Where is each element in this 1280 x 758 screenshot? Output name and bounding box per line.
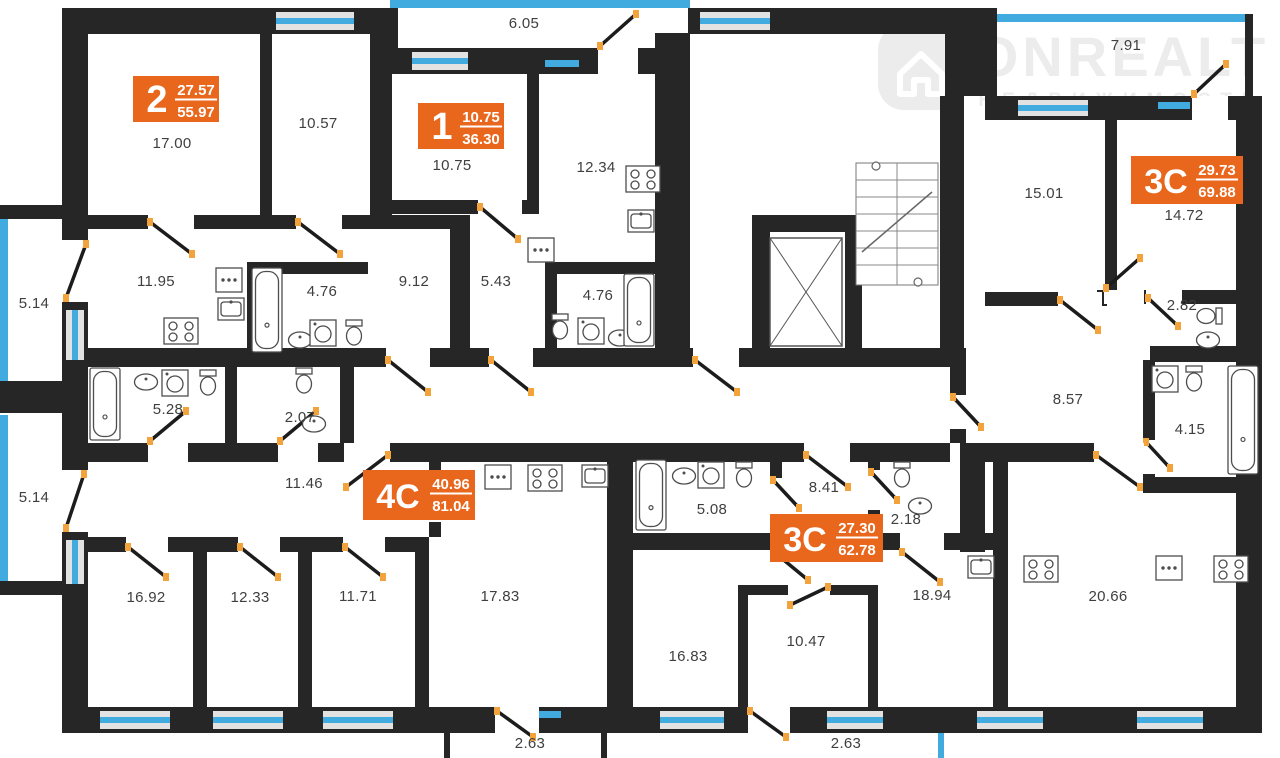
- door-hinge: [803, 451, 809, 459]
- door-hinge: [147, 218, 153, 226]
- door-hinge: [747, 707, 753, 715]
- apartment-total-area: 69.88: [1198, 184, 1236, 201]
- door-opening: [598, 48, 638, 74]
- window-glass: [100, 717, 170, 723]
- door-hinge: [425, 388, 431, 396]
- door-hinge: [1093, 451, 1099, 459]
- stove-icon: [626, 166, 660, 192]
- window-glass: [1137, 717, 1203, 723]
- room-area-label: 5.28: [153, 401, 183, 418]
- door-opening: [748, 707, 790, 733]
- wall: [444, 733, 450, 758]
- room-area-label: 9.12: [399, 273, 429, 290]
- wall: [607, 462, 633, 707]
- door-hinge: [275, 573, 281, 581]
- staircase: [856, 162, 938, 286]
- door-opening: [278, 443, 318, 462]
- room-area-label: 11.95: [137, 273, 175, 290]
- door-hinge: [147, 437, 153, 445]
- door-hinge: [83, 240, 89, 248]
- door-hinge: [783, 733, 789, 741]
- door-opening: [495, 707, 539, 733]
- room-area-label: 10.47: [786, 633, 825, 650]
- room-area-label: 8.57: [1053, 391, 1083, 408]
- apartment-total-area: 81.04: [432, 498, 470, 515]
- washing-machine-icon: [1152, 366, 1178, 392]
- door-hinge: [1103, 284, 1109, 292]
- washing-machine-icon: [162, 370, 188, 396]
- wall: [88, 215, 392, 229]
- wall: [601, 733, 607, 758]
- door-hinge: [515, 235, 521, 243]
- toilet-icon: [552, 314, 568, 339]
- room-area-label: 15.01: [1024, 185, 1063, 202]
- window-glass: [1018, 105, 1088, 111]
- wall: [942, 348, 966, 367]
- washbasin-icon: [1197, 332, 1220, 348]
- room-area-label: 16.83: [668, 648, 707, 665]
- door-opening: [148, 443, 188, 462]
- room-area-label: 2.18: [891, 511, 921, 528]
- wall: [450, 215, 470, 348]
- window-glass: [323, 717, 393, 723]
- door-hinge: [343, 483, 349, 491]
- door-hinge: [189, 250, 195, 258]
- fridge-icon: [485, 465, 511, 489]
- window-glass: [72, 310, 78, 360]
- apartment-total-area: 62.78: [838, 542, 876, 559]
- room-area-label: 5.14: [19, 295, 49, 312]
- door-hinge: [488, 356, 494, 364]
- room-area-label: 4.76: [583, 287, 613, 304]
- door-hinge: [894, 496, 900, 504]
- door-hinge: [494, 707, 500, 715]
- apartment-type: 3C: [1144, 163, 1187, 201]
- wall: [370, 33, 392, 229]
- door-opening: [1104, 290, 1144, 304]
- door-opening: [1192, 96, 1228, 120]
- room-area-label: 16.92: [126, 589, 165, 606]
- door-hinge: [528, 388, 534, 396]
- sink-icon: [628, 210, 654, 232]
- room-area-label: 17.00: [152, 135, 191, 152]
- elevator-shaft: [770, 238, 842, 346]
- washing-machine-icon: [310, 320, 336, 346]
- toilet-icon: [894, 462, 910, 487]
- door-hinge: [183, 407, 189, 415]
- wall: [1105, 96, 1117, 292]
- door-hinge: [950, 393, 956, 401]
- room-area-label: 5.43: [481, 273, 511, 290]
- door-leaf: [902, 552, 940, 582]
- door-hinge: [787, 601, 793, 609]
- room-area-label: 12.33: [230, 589, 269, 606]
- door-hinge: [597, 42, 603, 50]
- apartment-type: 3C: [783, 521, 826, 559]
- room-area-label: 4.76: [307, 283, 337, 300]
- room-area-label: 2.63: [515, 735, 545, 752]
- room-area-label: 10.75: [432, 157, 471, 174]
- door-hinge: [63, 294, 69, 302]
- balcony-glazing: [997, 14, 1245, 22]
- room-area-label: 12.34: [576, 159, 615, 176]
- apartment-badge: 227.5755.97: [133, 76, 219, 122]
- toilet-icon: [736, 462, 752, 487]
- balcony-glazing: [1158, 102, 1190, 109]
- room-area-label: 5.08: [697, 501, 727, 518]
- window-glass: [700, 18, 770, 24]
- door-opening: [900, 533, 944, 550]
- window-glass: [827, 717, 883, 723]
- door-hinge: [342, 543, 348, 551]
- apartment-badge: 4C40.9681.04: [363, 470, 475, 520]
- room-area-label: 2.82: [1167, 297, 1197, 314]
- window-glass: [977, 717, 1043, 723]
- stove-icon: [1214, 556, 1248, 582]
- bathtub-icon: [90, 368, 120, 440]
- door-leaf: [600, 14, 636, 46]
- wall: [193, 552, 207, 707]
- apartment-living-area: 27.57: [177, 82, 215, 99]
- room-area-label: 18.94: [912, 587, 951, 604]
- balcony-glazing: [545, 60, 579, 67]
- wall: [993, 552, 1008, 707]
- apartment-badge: 3C29.7369.88: [1131, 156, 1243, 204]
- door-hinge: [63, 524, 69, 532]
- wall: [225, 367, 237, 443]
- wall: [945, 8, 997, 96]
- wall: [0, 581, 62, 595]
- wall: [340, 367, 354, 443]
- bathtub-icon: [252, 268, 282, 352]
- window-glass: [213, 717, 283, 723]
- apartment-badge: 110.7536.30: [418, 103, 504, 149]
- room-area-label: 11.46: [285, 475, 323, 492]
- door-hinge: [385, 451, 391, 459]
- door-hinge: [796, 504, 802, 512]
- door-hinge: [1223, 60, 1229, 68]
- door-hinge: [899, 548, 905, 556]
- room-area-label: 4.15: [1175, 421, 1205, 438]
- door-hinge: [295, 218, 301, 226]
- door-hinge: [805, 576, 811, 584]
- washing-machine-icon: [578, 318, 604, 344]
- balcony-glazing: [0, 219, 8, 381]
- door-hinge: [868, 468, 874, 476]
- sink-icon: [968, 556, 994, 578]
- door-hinge: [633, 10, 639, 18]
- toilet-icon: [296, 368, 312, 393]
- apartment-living-area: 27.30: [838, 520, 876, 537]
- room-area-label: 2.63: [831, 735, 861, 752]
- door-hinge: [1137, 254, 1143, 262]
- balcony-glazing: [390, 0, 690, 8]
- door-hinge: [163, 573, 169, 581]
- bathtub-icon: [624, 274, 654, 346]
- wall: [527, 72, 539, 214]
- door-hinge: [81, 470, 87, 478]
- floor-plan-svg: ONREALTНЕДВИЖИМОСТЬ17.0010.576.0510.7512…: [0, 0, 1280, 758]
- door-hinge: [1095, 326, 1101, 334]
- wall: [392, 215, 450, 229]
- door-hinge: [1137, 483, 1143, 491]
- apartment-type: 4C: [376, 478, 419, 516]
- stove-icon: [528, 465, 562, 491]
- wall: [545, 262, 655, 274]
- door-hinge: [237, 543, 243, 551]
- room-area-label: 5.14: [19, 489, 49, 506]
- logo-name: ONREALT: [975, 25, 1270, 88]
- floor-plan: ONREALTНЕДВИЖИМОСТЬ17.0010.576.0510.7512…: [0, 0, 1280, 758]
- wall: [960, 443, 985, 552]
- room-area-label: 11.71: [339, 588, 377, 605]
- sink-icon: [582, 465, 608, 487]
- door-hinge: [477, 203, 483, 211]
- door-hinge: [845, 483, 851, 491]
- door-hinge: [277, 437, 283, 445]
- stove-icon: [1024, 556, 1058, 582]
- door-hinge: [978, 423, 984, 431]
- door-hinge: [937, 578, 943, 586]
- window-glass: [660, 717, 724, 723]
- wall: [993, 462, 1008, 552]
- balcony-glazing: [938, 733, 944, 758]
- wall: [62, 8, 88, 733]
- stove-icon: [164, 318, 198, 344]
- wall: [260, 33, 272, 215]
- toilet-icon: [1186, 366, 1202, 391]
- apartment-type: 1: [431, 106, 452, 148]
- washbasin-icon: [135, 374, 158, 390]
- balcony-glazing: [539, 711, 561, 718]
- bathtub-icon: [1228, 366, 1258, 474]
- door-hinge: [380, 573, 386, 581]
- apartment-total-area: 55.97: [177, 104, 215, 121]
- wall: [738, 585, 748, 707]
- room-area-label: 2.07: [285, 409, 315, 426]
- door-hinge: [1175, 322, 1181, 330]
- wall: [0, 205, 62, 219]
- fridge-icon: [216, 268, 242, 292]
- apartment-type: 2: [146, 79, 167, 121]
- window-glass: [276, 18, 354, 24]
- door-hinge: [770, 476, 776, 484]
- door-hinge: [692, 356, 698, 364]
- apartment-living-area: 10.75: [462, 109, 500, 126]
- fridge-icon: [528, 238, 554, 262]
- door-hinge: [125, 543, 131, 551]
- door-hinge: [337, 250, 343, 258]
- wall: [1143, 477, 1262, 493]
- room-area-label: 20.66: [1088, 588, 1127, 605]
- washbasin-icon: [673, 468, 696, 484]
- door-hinge: [385, 356, 391, 364]
- apartment-total-area: 36.30: [462, 131, 500, 148]
- apartment-badge: 3C27.3062.78: [770, 514, 883, 562]
- door-hinge: [734, 388, 740, 396]
- wall: [1245, 14, 1253, 96]
- wall: [298, 552, 312, 707]
- washbasin-icon: [289, 332, 312, 348]
- toilet-icon: [346, 320, 362, 345]
- window-glass: [412, 58, 468, 64]
- room-area-label: 7.91: [1111, 37, 1141, 54]
- room-area-label: 8.41: [809, 479, 839, 496]
- balcony-glazing: [0, 415, 8, 581]
- door-hinge: [1167, 464, 1173, 472]
- room-area-label: 6.05: [509, 15, 539, 32]
- door-hinge: [1145, 294, 1151, 302]
- fridge-icon: [1156, 556, 1182, 580]
- wall: [752, 215, 862, 232]
- room-area-label: 17.83: [480, 588, 519, 605]
- toilet-icon: [1197, 308, 1222, 324]
- wall: [415, 552, 429, 707]
- room-area-label: 14.72: [1164, 207, 1203, 224]
- wall: [940, 96, 964, 348]
- wall: [633, 533, 772, 550]
- wall: [752, 232, 770, 348]
- door-hinge: [1191, 90, 1197, 98]
- room-area-label: 10.57: [298, 115, 337, 132]
- sink-icon: [218, 298, 244, 320]
- washing-machine-icon: [698, 462, 724, 488]
- wall: [868, 585, 878, 707]
- door-hinge: [825, 583, 831, 591]
- apartment-living-area: 40.96: [432, 476, 470, 493]
- door-hinge: [1057, 296, 1063, 304]
- apartment-living-area: 29.73: [1198, 162, 1236, 179]
- toilet-icon: [200, 370, 216, 395]
- window-glass: [72, 540, 78, 584]
- bathtub-icon: [636, 460, 666, 530]
